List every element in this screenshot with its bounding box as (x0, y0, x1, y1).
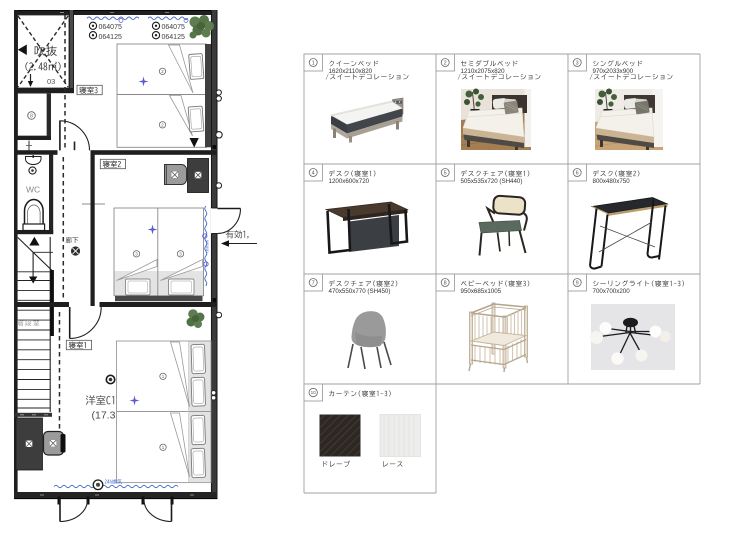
svg-text:5: 5 (444, 171, 447, 177)
svg-text:6: 6 (576, 171, 579, 177)
svg-text:950x685x1005: 950x685x1005 (461, 288, 502, 295)
svg-text:W1650: W1650 (205, 240, 210, 253)
svg-text:505x535x720 (SH440): 505x535x720 (SH440) (461, 178, 523, 185)
svg-text:(17.3: (17.3 (92, 410, 116, 422)
svg-text:7: 7 (312, 281, 315, 287)
svg-text:1210x2075x820: 1210x2075x820 (461, 68, 506, 75)
svg-text:3: 3 (576, 61, 579, 67)
svg-text:470x550x770 (SH450): 470x550x770 (SH450) (329, 288, 391, 295)
svg-text:WC: WC (26, 185, 40, 195)
svg-text:10: 10 (311, 390, 317, 395)
svg-text:064125: 064125 (162, 34, 185, 41)
svg-text:1: 1 (312, 61, 315, 67)
svg-text:064075: 064075 (99, 24, 122, 31)
svg-text:800x480x750: 800x480x750 (593, 178, 631, 185)
svg-text:4: 4 (312, 171, 315, 177)
svg-text:1200x600x720: 1200x600x720 (329, 178, 370, 185)
svg-text:8: 8 (30, 114, 33, 120)
svg-text:064075: 064075 (162, 24, 185, 31)
svg-text:9: 9 (576, 281, 579, 287)
svg-text:2: 2 (444, 61, 447, 67)
svg-text:064125: 064125 (99, 34, 122, 41)
svg-text:03: 03 (47, 77, 55, 86)
svg-text:8: 8 (444, 281, 447, 287)
svg-text:700x700x200: 700x700x200 (593, 288, 631, 295)
svg-text:1620x2110x820: 1620x2110x820 (329, 68, 373, 75)
svg-text:970x2033x900: 970x2033x900 (593, 68, 634, 75)
